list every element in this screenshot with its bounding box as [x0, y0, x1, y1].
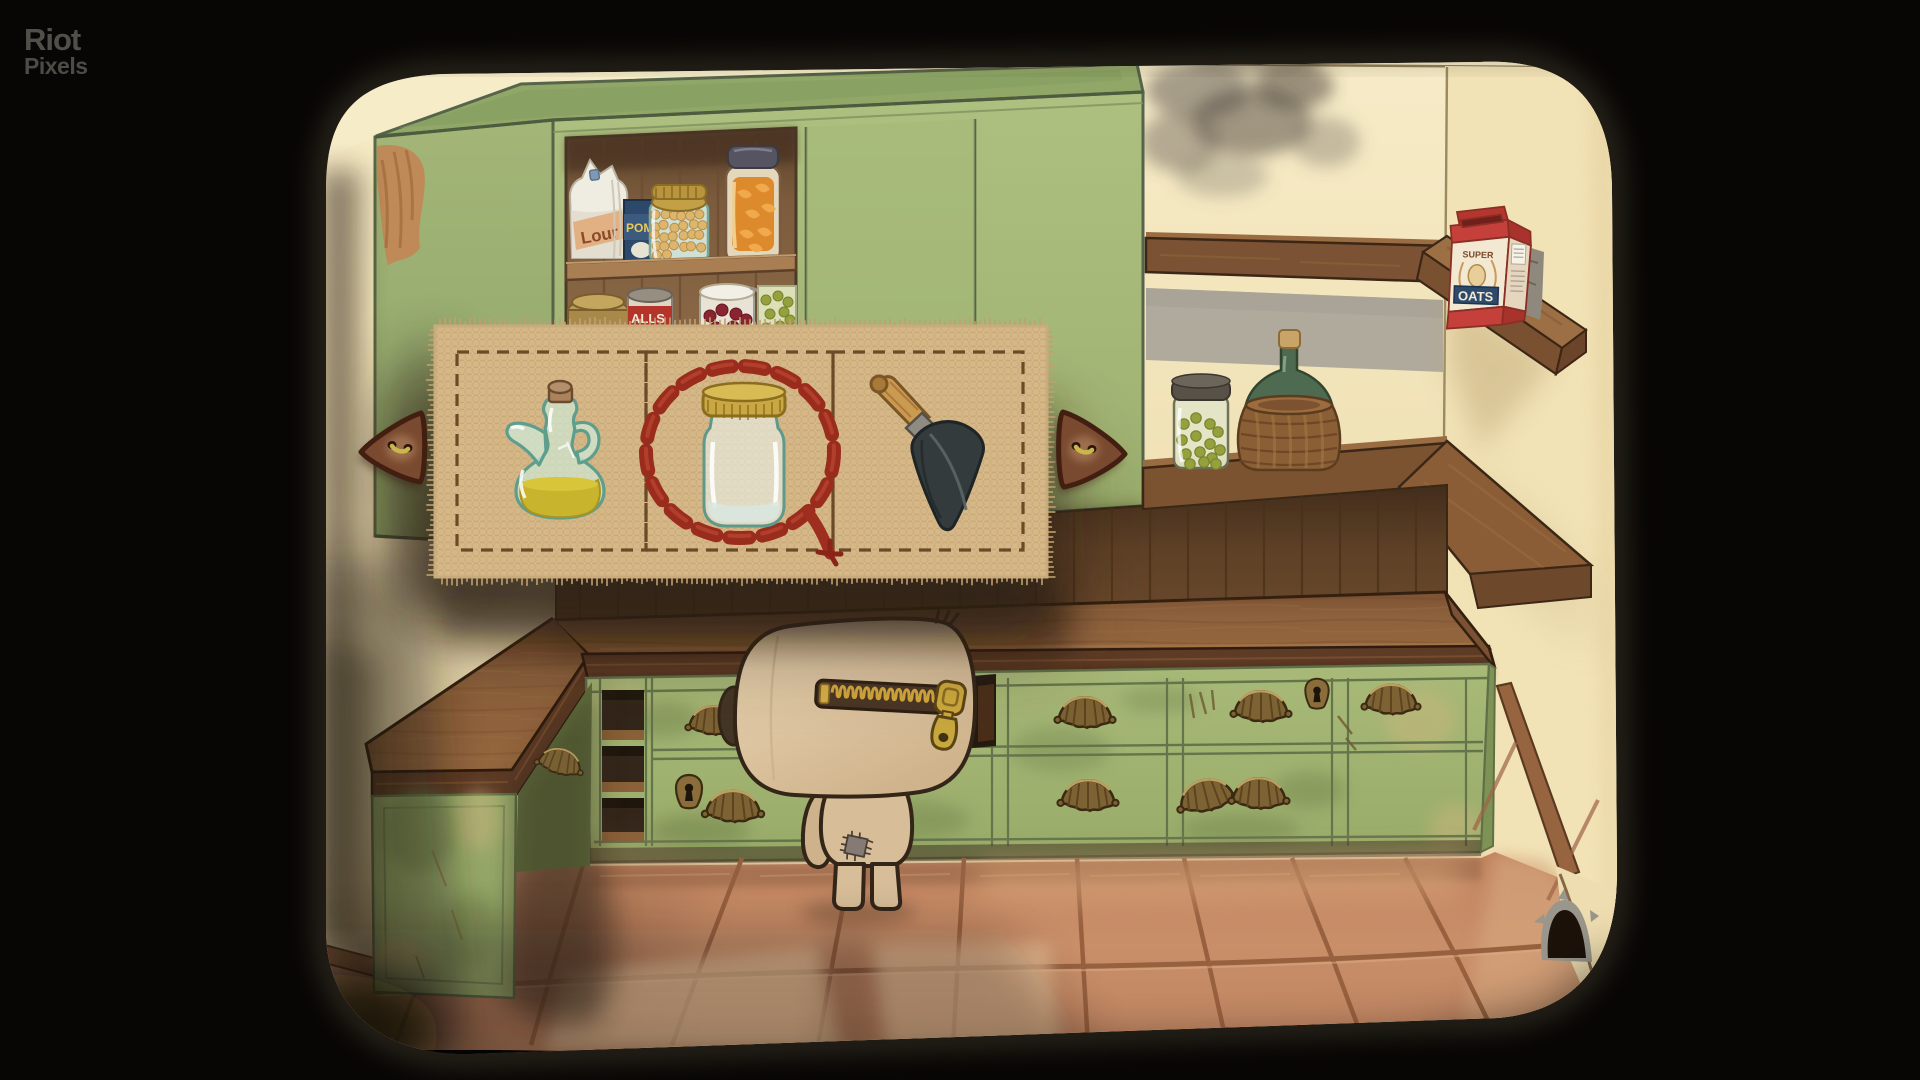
svg-text:SUPER: SUPER: [1462, 249, 1494, 260]
svg-text:Pixels: Pixels: [24, 53, 88, 79]
svg-text:OATS: OATS: [1458, 288, 1494, 304]
svg-text:Riot: Riot: [24, 22, 81, 57]
